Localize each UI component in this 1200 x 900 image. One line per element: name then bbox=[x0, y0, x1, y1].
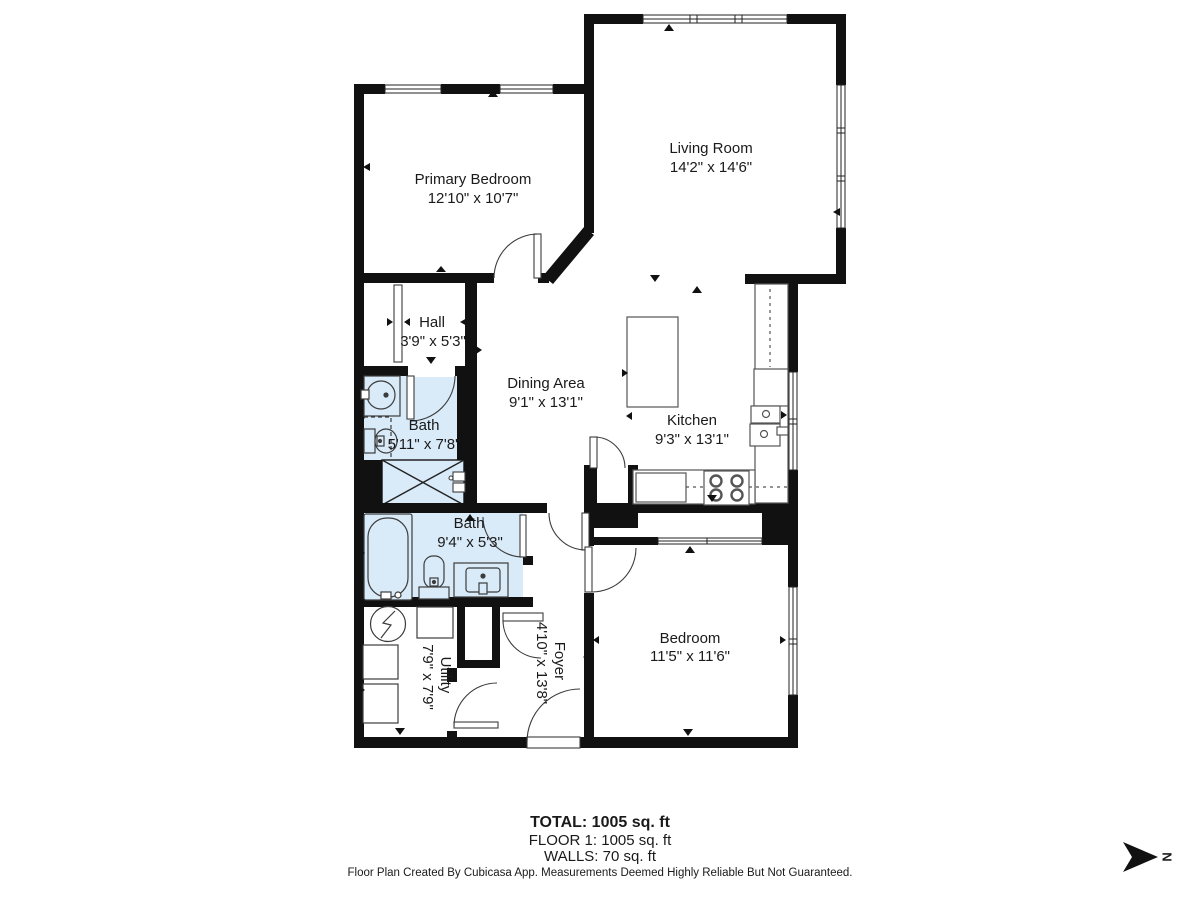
room-label-hall: Hall bbox=[419, 314, 445, 331]
summary-total: TOTAL: 1005 sq. ft bbox=[530, 814, 671, 831]
floor-plan-canvas: Primary Bedroom 12'10" x 10'7" Living Ro… bbox=[0, 0, 1200, 900]
appliance-box bbox=[363, 645, 398, 679]
summary-floor: FLOOR 1: 1005 sq. ft bbox=[529, 832, 672, 849]
sink-drain-icon bbox=[761, 431, 768, 438]
room-dims-bath-upper: 5'11" x 7'8" bbox=[388, 436, 461, 453]
window-primary-1 bbox=[385, 85, 441, 93]
kitchen-fixtures bbox=[627, 284, 788, 505]
room-label-living-room: Living Room bbox=[669, 140, 752, 157]
window-bedroom-right bbox=[789, 587, 797, 695]
room-dims-primary-bedroom: 12'10" x 10'7" bbox=[428, 190, 519, 207]
window-bedroom-top bbox=[658, 538, 762, 544]
appliance-box bbox=[363, 684, 398, 723]
faucet-icon bbox=[361, 390, 369, 399]
room-label-bedroom: Bedroom bbox=[660, 630, 721, 647]
door-closet-slider bbox=[394, 285, 402, 362]
vanity-sink-icon bbox=[454, 563, 508, 597]
sink-drain-icon bbox=[763, 411, 770, 418]
north-arrow: N bbox=[1123, 842, 1175, 872]
room-dims-bedroom: 11'5" x 11'6" bbox=[650, 648, 730, 665]
counter-appliance bbox=[777, 427, 788, 435]
door-utility bbox=[454, 683, 498, 728]
room-dims-bath-lower: 9'4" x 5'3" bbox=[437, 534, 503, 551]
window-living-top bbox=[643, 15, 787, 23]
room-dims-living-room: 14'2" x 14'6" bbox=[670, 159, 752, 176]
room-dims-hall: 3'9" x 5'3" bbox=[400, 333, 466, 350]
floor-plan-page: Primary Bedroom 12'10" x 10'7" Living Ro… bbox=[0, 0, 1200, 900]
door-primary-bedroom bbox=[494, 234, 541, 278]
room-dims-dining-area: 9'1" x 13'1" bbox=[509, 394, 583, 411]
north-arrow-icon bbox=[1123, 842, 1158, 872]
door-foyer-top bbox=[549, 513, 589, 550]
base-cabinet bbox=[636, 473, 686, 502]
round-sink-icon bbox=[367, 381, 395, 409]
kitchen-island bbox=[627, 317, 678, 407]
room-label-bath-upper: Bath bbox=[409, 417, 440, 434]
window-primary-2 bbox=[500, 85, 553, 93]
summary-block: TOTAL: 1005 sq. ft FLOOR 1: 1005 sq. ft … bbox=[348, 814, 853, 879]
north-label: N bbox=[1160, 852, 1175, 861]
disclaimer-text: Floor Plan Created By Cubicasa App. Meas… bbox=[348, 867, 853, 879]
summary-walls: WALLS: 70 sq. ft bbox=[544, 848, 657, 865]
door-pantry bbox=[590, 437, 625, 468]
sink-drain-icon bbox=[384, 393, 388, 397]
fridge bbox=[754, 369, 788, 406]
room-label-bath-lower: Bath bbox=[454, 515, 485, 532]
washer-icon bbox=[417, 607, 453, 638]
room-label-primary-bedroom: Primary Bedroom bbox=[415, 171, 532, 188]
bathtub-icon bbox=[364, 514, 412, 600]
room-label-kitchen: Kitchen bbox=[667, 412, 717, 429]
window-living-right bbox=[837, 85, 845, 228]
room-dims-kitchen: 9'3" x 13'1" bbox=[655, 431, 729, 448]
window-kitchen-right bbox=[789, 372, 797, 470]
room-label-dining-area: Dining Area bbox=[507, 375, 585, 392]
